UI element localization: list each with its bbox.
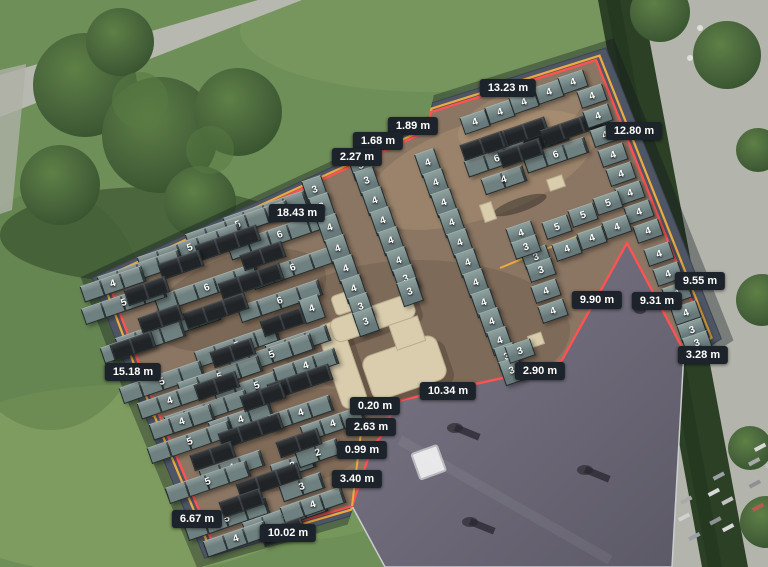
- panel-count-label: 5: [268, 349, 277, 361]
- panel-count-label: 5: [204, 476, 213, 488]
- measurement-label[interactable]: 9.90 m: [572, 291, 622, 309]
- panel-cell[interactable]: 5: [541, 214, 572, 240]
- measurement-label[interactable]: 9.55 m: [675, 272, 725, 290]
- panel-count-label: 6: [289, 262, 298, 274]
- measurement-label[interactable]: 10.02 m: [260, 524, 316, 542]
- panel-count-label: 5: [604, 197, 613, 209]
- panel-count-label: 4: [588, 90, 597, 102]
- panel-count-label: 5: [579, 209, 588, 221]
- panel-cell[interactable]: 5: [592, 190, 623, 216]
- panel-count-label: 4: [609, 149, 618, 161]
- panel-count-label: 2: [314, 447, 323, 459]
- panel-cell[interactable]: 4: [537, 298, 568, 324]
- measurement-label[interactable]: 3.28 m: [678, 346, 728, 364]
- panel-count-label: 4: [395, 255, 404, 267]
- panel-count-label: 4: [371, 195, 380, 207]
- panel-count-label: 4: [626, 187, 635, 199]
- panel-cell[interactable]: 3: [396, 277, 424, 307]
- measurement-label[interactable]: 12.80 m: [606, 122, 662, 140]
- panel-count-label: 4: [664, 268, 673, 280]
- panel-count-label: 4: [297, 407, 306, 419]
- panel-count-label: 4: [617, 168, 626, 180]
- measurement-label[interactable]: 0.99 m: [337, 441, 387, 459]
- panel-count-label: 3: [537, 264, 546, 276]
- panel-count-label: 4: [588, 232, 597, 244]
- panel-count-label: 4: [329, 418, 338, 430]
- panel-count-label: 4: [549, 305, 558, 317]
- panel-cell[interactable]: 3: [352, 307, 380, 337]
- design-canvas[interactable]: 4565654656655455554454444543253554466424…: [0, 0, 768, 567]
- panel-count-label: 3: [298, 481, 307, 493]
- panel-count-label: 4: [387, 235, 396, 247]
- panel-count-label: 4: [545, 86, 554, 98]
- measurement-label[interactable]: 2.27 m: [332, 148, 382, 166]
- measurement-label[interactable]: 0.20 m: [350, 397, 400, 415]
- panel-count-label: 4: [655, 248, 664, 260]
- panel-count-label: 5: [186, 436, 195, 448]
- panel-count-label: 4: [480, 297, 489, 309]
- measurement-label[interactable]: 2.63 m: [346, 418, 396, 436]
- measurement-label[interactable]: 6.67 m: [172, 510, 222, 528]
- measurement-label[interactable]: 10.34 m: [420, 382, 476, 400]
- panel-count-label: 4: [326, 222, 335, 234]
- panel-count-label: 4: [594, 110, 603, 122]
- panel-count-label: 4: [109, 278, 118, 290]
- annotations-layer: 4565654656655455554454444543253554466424…: [0, 0, 768, 567]
- measurement-label[interactable]: 15.18 m: [105, 363, 161, 381]
- panel-count-label: 4: [613, 221, 622, 233]
- panel-count-label: 4: [542, 285, 551, 297]
- panel-count-label: 4: [520, 96, 529, 108]
- measurement-label[interactable]: 2.90 m: [515, 362, 565, 380]
- panel-count-label: 4: [472, 277, 481, 289]
- panel-count-label: 4: [342, 263, 351, 275]
- panel-count-label: 6: [203, 282, 212, 294]
- panel-count-label: 4: [496, 106, 505, 118]
- panel-count-label: 4: [464, 257, 473, 269]
- panel-count-label: 6: [276, 295, 285, 307]
- measurement-label[interactable]: 9.31 m: [632, 292, 682, 310]
- panel-count-label: 4: [309, 499, 318, 511]
- panel-count-label: 4: [569, 76, 578, 88]
- panel-count-label: 4: [563, 243, 572, 255]
- panel-count-label: 3: [516, 345, 525, 357]
- panel-count-label: 4: [488, 316, 497, 328]
- panel-count-label: 3: [362, 316, 371, 328]
- panel-count-label: 3: [522, 241, 531, 253]
- panel-count-label: 4: [635, 206, 644, 218]
- panel-count-label: 4: [456, 237, 465, 249]
- panel-count-label: 4: [334, 243, 343, 255]
- panel-count-label: 5: [553, 221, 562, 233]
- panel-count-label: 4: [424, 157, 433, 169]
- panel-count-label: 4: [350, 283, 359, 295]
- panel-count-label: 4: [308, 303, 317, 315]
- panel-count-label: 4: [432, 177, 441, 189]
- measurement-label[interactable]: 18.43 m: [269, 204, 325, 222]
- panel-count-label: 4: [440, 197, 449, 209]
- panel-count-label: 3: [406, 286, 415, 298]
- panel-count-label: 4: [232, 533, 241, 545]
- panel-count-label: 4: [166, 395, 175, 407]
- panel-count-label: 4: [178, 416, 187, 428]
- measurement-label[interactable]: 3.40 m: [332, 470, 382, 488]
- measurement-label[interactable]: 13.23 m: [480, 79, 536, 97]
- panel-count-label: 4: [448, 217, 457, 229]
- panel-count-label: 3: [363, 175, 372, 187]
- panel-count-label: 4: [500, 174, 509, 186]
- panel-count-label: 4: [644, 225, 653, 237]
- panel-count-label: 6: [276, 229, 285, 241]
- panel-cell[interactable]: 4: [601, 214, 632, 240]
- panel-count-label: 4: [471, 116, 480, 128]
- panel-count-label: 6: [552, 149, 561, 161]
- panel-count-label: 4: [379, 215, 388, 227]
- panel-count-label: 4: [682, 307, 691, 319]
